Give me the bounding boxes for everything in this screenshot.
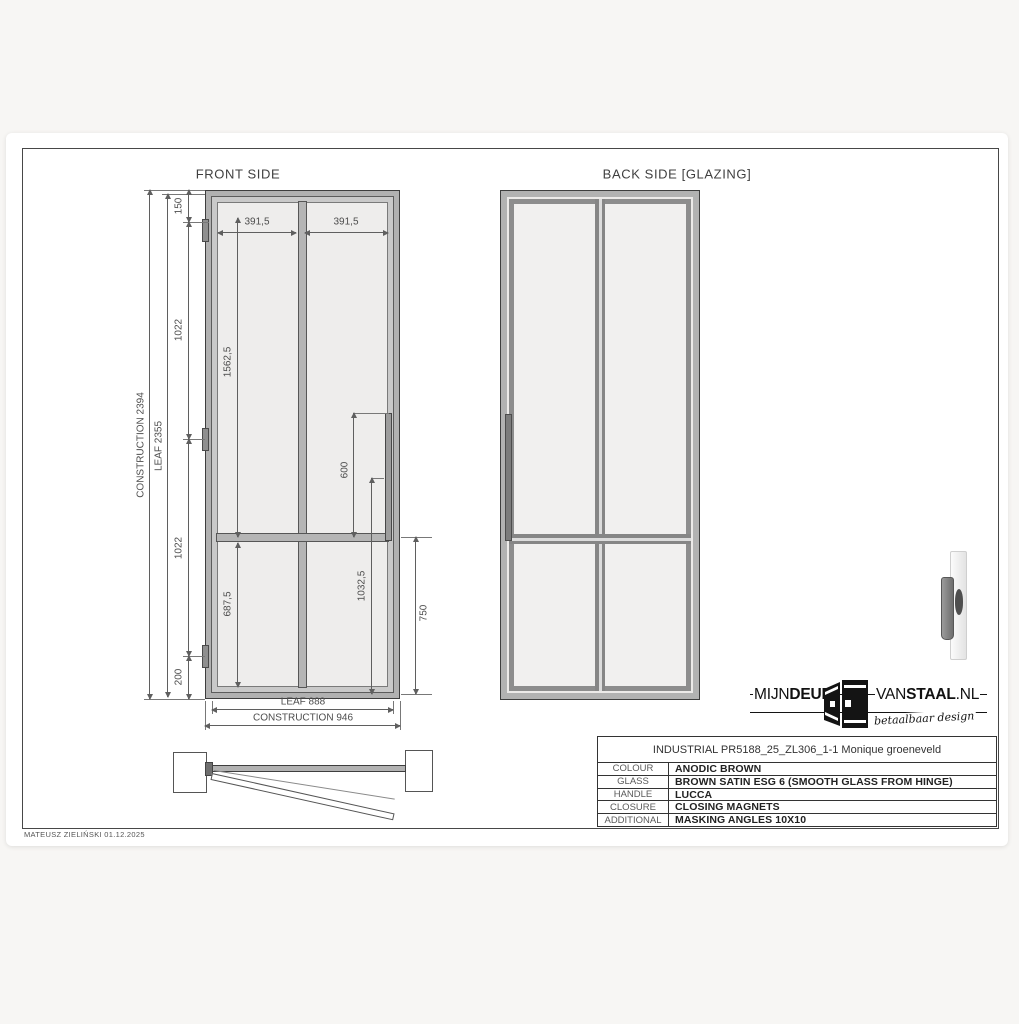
spec-label-glass: GLASS	[598, 776, 669, 788]
spec-value-handle: LUCCA	[669, 789, 996, 801]
spec-label-colour: COLOUR	[598, 763, 669, 775]
title-block: INDUSTRIAL PR5188_25_ZL306_1-1 Monique g…	[597, 736, 997, 827]
logo-van: VAN	[876, 686, 906, 703]
front-door-handle	[385, 413, 392, 541]
spec-value-additional: MASKING ANGLES 10X10	[669, 814, 996, 826]
spec-value-closure: CLOSING MAGNETS	[669, 801, 996, 813]
dim-line-construction-height	[149, 190, 150, 699]
extension-line	[144, 190, 205, 191]
dim-label-leaf-width: LEAF 888	[281, 697, 325, 708]
dim-line-200	[188, 656, 189, 699]
dim-line-1562	[237, 218, 238, 537]
dim-label-leaf-height: LEAF 2355	[154, 421, 165, 471]
dim-label-1562: 1562,5	[223, 347, 234, 378]
author-date: MATEUSZ ZIELIŃSKI 01.12.2025	[24, 830, 145, 839]
dim-label-600: 600	[340, 462, 351, 479]
dim-label-1022-lower: 1022	[174, 537, 185, 559]
dim-line-750	[415, 537, 416, 694]
spec-label-closure: CLOSURE	[598, 801, 669, 813]
dim-line-1022-lower	[188, 439, 189, 656]
dim-line-391-right	[305, 232, 388, 233]
dim-label-1022-upper: 1022	[174, 319, 185, 341]
front-mullion-vertical	[298, 201, 307, 688]
dim-label-391-right: 391,5	[333, 217, 358, 228]
spec-label-additional: ADDITIONAL	[598, 814, 669, 826]
dim-line-600	[353, 413, 354, 537]
back-door-view	[500, 190, 700, 700]
dim-line-leaf-width	[212, 709, 393, 710]
table-row: COLOUR ANODIC BROWN	[598, 763, 996, 776]
table-row: ADDITIONAL MASKING ANGLES 10X10	[598, 814, 996, 826]
back-door-handle	[505, 414, 512, 541]
logo: MIJNDEUR VANSTAAL.NL betaalbaar design	[747, 678, 995, 736]
dim-line-391-left	[218, 232, 296, 233]
plan-wall-right	[405, 750, 433, 792]
back-mullion-vertical	[595, 199, 605, 691]
dim-label-391-left: 391,5	[244, 217, 269, 228]
dim-line-leaf-height	[167, 194, 168, 697]
dim-label-150: 150	[174, 198, 185, 215]
dim-line-1022-upper	[188, 222, 189, 439]
logo-mijn: MIJN	[754, 686, 789, 703]
dim-line-1032	[371, 478, 372, 694]
dim-line-150	[188, 190, 189, 222]
table-row: GLASS BROWN SATIN ESG 6 (SMOOTH GLASS FR…	[598, 776, 996, 789]
logo-door-icon	[820, 679, 872, 729]
dim-label-200: 200	[174, 669, 185, 686]
dim-label-687: 687,5	[223, 591, 234, 616]
back-view-title: BACK SIDE [GLAZING]	[603, 167, 752, 182]
table-row: HANDLE LUCCA	[598, 789, 996, 802]
spec-value-glass: BROWN SATIN ESG 6 (SMOOTH GLASS FROM HIN…	[669, 776, 996, 788]
plan-door-closed	[209, 765, 406, 772]
back-mullion-horizontal	[509, 534, 691, 544]
drawing-canvas: FRONT SIDE CONSTRUCTION 2394 LEAF 2355	[0, 0, 1019, 1024]
front-view-title: FRONT SIDE	[196, 167, 281, 182]
dim-label-1032: 1032,5	[357, 571, 368, 602]
dim-label-750: 750	[419, 605, 430, 622]
plan-wall-left	[173, 752, 207, 793]
extension-line	[353, 413, 389, 414]
logo-staal: STAAL	[906, 686, 956, 703]
handle-grip	[941, 577, 954, 640]
title-block-header: INDUSTRIAL PR5188_25_ZL306_1-1 Monique g…	[598, 737, 996, 763]
front-mullion-horizontal	[216, 533, 389, 542]
dim-label-construction-width: CONSTRUCTION 946	[253, 713, 353, 724]
spec-value-colour: ANODIC BROWN	[669, 763, 996, 775]
logo-nl: .NL	[956, 686, 980, 703]
table-row: CLOSURE CLOSING MAGNETS	[598, 801, 996, 814]
dim-label-construction-height: CONSTRUCTION 2394	[136, 392, 147, 498]
extension-line	[144, 699, 205, 700]
logo-text-right: VANSTAAL.NL	[875, 686, 980, 704]
handle-slot	[955, 589, 963, 615]
dim-line-construction-width	[205, 725, 400, 726]
spec-label-handle: HANDLE	[598, 789, 669, 801]
dim-line-687	[237, 543, 238, 687]
